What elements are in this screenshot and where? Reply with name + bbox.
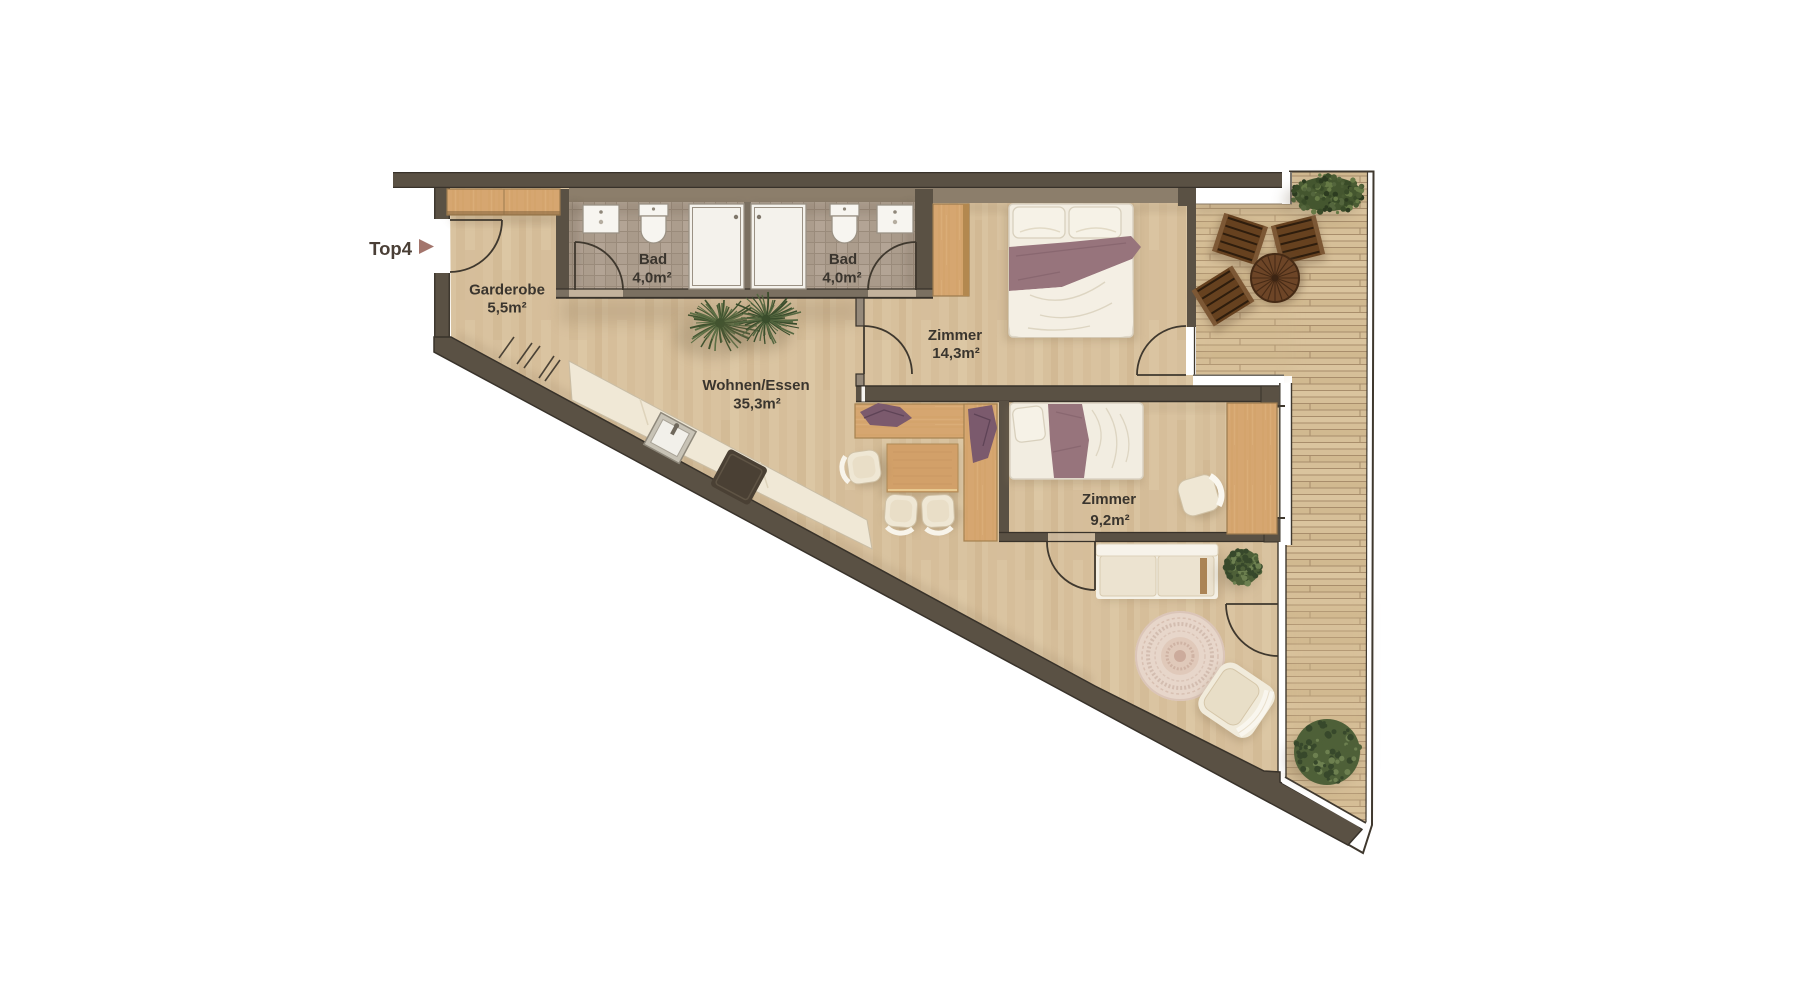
svg-text:Top4: Top4	[369, 238, 413, 259]
svg-text:Zimmer: Zimmer	[1082, 491, 1136, 508]
svg-text:Bad: Bad	[829, 251, 857, 268]
svg-text:9,2m²: 9,2m²	[1090, 512, 1129, 529]
svg-text:35,3m²: 35,3m²	[733, 396, 781, 413]
svg-text:5,5m²: 5,5m²	[487, 300, 526, 317]
svg-text:Wohnen/Essen: Wohnen/Essen	[702, 377, 809, 394]
svg-text:Zimmer: Zimmer	[928, 327, 982, 344]
svg-text:4,0m²: 4,0m²	[822, 270, 861, 287]
svg-text:Garderobe: Garderobe	[469, 282, 545, 299]
svg-text:14,3m²: 14,3m²	[932, 345, 980, 362]
svg-text:Bad: Bad	[639, 251, 667, 268]
svg-text:4,0m²: 4,0m²	[632, 270, 671, 287]
